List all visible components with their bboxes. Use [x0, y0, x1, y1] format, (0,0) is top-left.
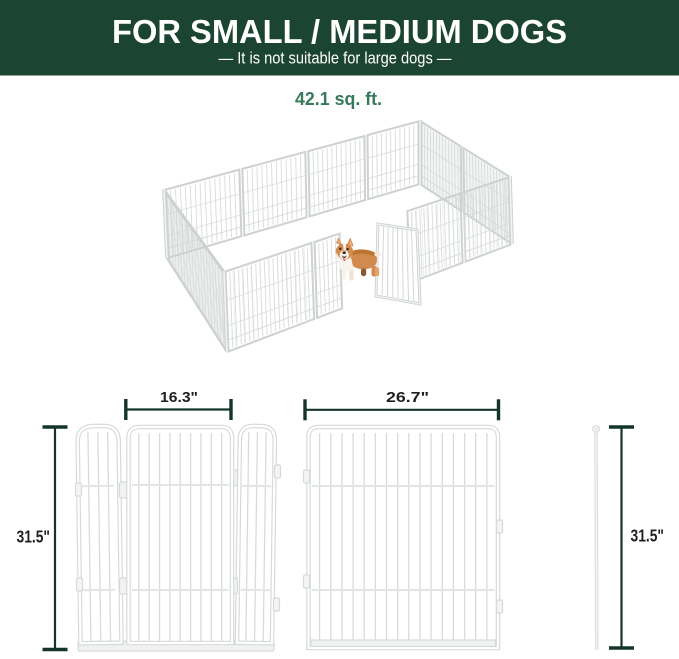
svg-text:— It is not suitable for larg: — It is not suitable for large dogs —	[219, 50, 452, 68]
svg-text:FOR SMALL / MEDIUM DOGS: FOR SMALL / MEDIUM DOGS	[112, 13, 567, 50]
svg-text:26.7": 26.7"	[386, 390, 429, 406]
svg-text:42.1 sq. ft.: 42.1 sq. ft.	[295, 89, 382, 109]
svg-text:31.5": 31.5"	[631, 526, 665, 546]
svg-text:31.5": 31.5"	[17, 527, 51, 547]
svg-text:16.3": 16.3"	[160, 390, 198, 406]
